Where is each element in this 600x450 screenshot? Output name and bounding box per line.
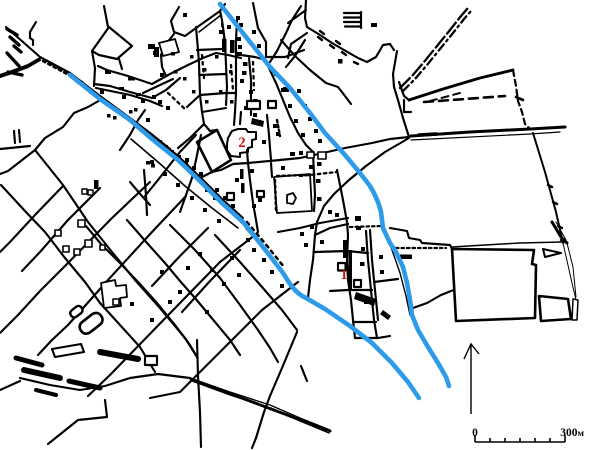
svg-text:300м: 300м — [560, 427, 584, 439]
svg-text:2: 2 — [238, 135, 245, 151]
svg-text:1: 1 — [341, 268, 348, 283]
svg-text:0: 0 — [472, 427, 478, 439]
